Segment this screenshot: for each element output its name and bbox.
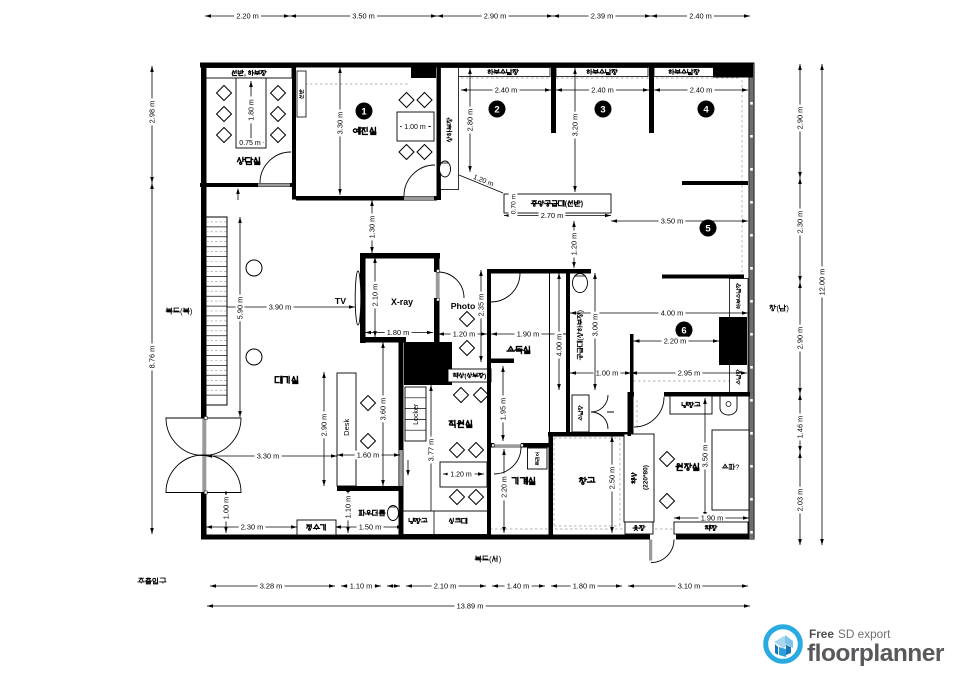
svg-text:2.50 m: 2.50 m bbox=[607, 467, 616, 490]
svg-text:3.77 m: 3.77 m bbox=[426, 439, 435, 462]
svg-text:2.90 m: 2.90 m bbox=[795, 107, 804, 130]
svg-text:1.00 m: 1.00 m bbox=[596, 368, 619, 377]
svg-text:2.20 m: 2.20 m bbox=[501, 476, 508, 498]
svg-text:2.20 m: 2.20 m bbox=[236, 11, 259, 20]
svg-text:2.40 m: 2.40 m bbox=[495, 85, 518, 94]
svg-text:): ) bbox=[484, 373, 486, 380]
svg-text:2.40 m: 2.40 m bbox=[591, 85, 614, 94]
svg-text:1.50 m: 1.50 m bbox=[359, 522, 382, 531]
svg-text:1.90 m: 1.90 m bbox=[701, 513, 724, 522]
svg-text:1.10 m: 1.10 m bbox=[350, 581, 373, 590]
svg-text:2.95 m: 2.95 m bbox=[678, 368, 701, 377]
svg-text:2.90 m: 2.90 m bbox=[795, 327, 804, 350]
svg-text:0.75 m: 0.75 m bbox=[239, 140, 261, 147]
svg-text:4: 4 bbox=[703, 104, 709, 115]
svg-text:1.10 m: 1.10 m bbox=[343, 496, 352, 519]
svg-text:5.90 m: 5.90 m bbox=[235, 297, 244, 320]
svg-text:): ) bbox=[786, 304, 789, 313]
svg-text:1.00 m: 1.00 m bbox=[404, 124, 426, 131]
svg-text:1.80 m: 1.80 m bbox=[573, 581, 596, 590]
svg-text:3.30 m: 3.30 m bbox=[335, 112, 344, 135]
svg-text:1.80 m: 1.80 m bbox=[248, 99, 255, 121]
svg-text:): ) bbox=[190, 307, 193, 316]
svg-text:3.50 m: 3.50 m bbox=[352, 11, 375, 20]
svg-text:1.20 m: 1.20 m bbox=[569, 233, 578, 256]
svg-text:(: ( bbox=[489, 555, 492, 564]
svg-text:?: ? bbox=[735, 463, 739, 472]
svg-text:(: ( bbox=[180, 307, 183, 316]
svg-text:3.90 m: 3.90 m bbox=[269, 302, 292, 311]
svg-text:2.03 m: 2.03 m bbox=[795, 489, 804, 512]
svg-text:8.76 m: 8.76 m bbox=[147, 346, 156, 369]
svg-text:1.30 m: 1.30 m bbox=[367, 216, 376, 239]
svg-text:Locker: Locker bbox=[413, 403, 420, 425]
svg-text:2.30 m: 2.30 m bbox=[241, 522, 264, 531]
svg-text:1.40 m: 1.40 m bbox=[507, 581, 530, 590]
svg-text:2.90 m: 2.90 m bbox=[484, 11, 507, 20]
svg-text:,: , bbox=[244, 71, 246, 78]
svg-text:2.39 m: 2.39 m bbox=[591, 11, 614, 20]
svg-text:1.46 m: 1.46 m bbox=[795, 416, 804, 439]
svg-text:2.35 m: 2.35 m bbox=[476, 294, 485, 317]
svg-text:(: ( bbox=[776, 304, 779, 313]
svg-text:1.95 m: 1.95 m bbox=[498, 398, 507, 421]
svg-text:): ) bbox=[576, 310, 585, 312]
svg-text:2.40 m: 2.40 m bbox=[690, 85, 713, 94]
svg-text:2.80 m: 2.80 m bbox=[465, 109, 474, 132]
svg-text:0.70 m: 0.70 m bbox=[510, 193, 517, 214]
svg-text:1.90 m: 1.90 m bbox=[517, 329, 540, 338]
svg-text:2.90 m: 2.90 m bbox=[319, 414, 328, 437]
svg-text:3.30 m: 3.30 m bbox=[257, 451, 280, 460]
svg-text:4.00 m: 4.00 m bbox=[554, 334, 563, 357]
svg-text:3: 3 bbox=[600, 104, 605, 115]
svg-text:1.60 m: 1.60 m bbox=[357, 450, 380, 459]
svg-text:3.00 m: 3.00 m bbox=[590, 314, 599, 337]
svg-text:TV: TV bbox=[335, 296, 346, 306]
svg-text:(220*80): (220*80) bbox=[642, 465, 649, 490]
svg-text:1.20 m: 1.20 m bbox=[453, 329, 476, 338]
svg-text:3.50 m: 3.50 m bbox=[700, 445, 709, 468]
svg-text:2.30 m: 2.30 m bbox=[795, 211, 804, 234]
svg-text:floorplanner: floorplanner bbox=[807, 640, 945, 667]
svg-text:12.00 m: 12.00 m bbox=[817, 269, 826, 296]
svg-text:Photo: Photo bbox=[451, 301, 476, 311]
svg-text:X-ray: X-ray bbox=[391, 297, 413, 307]
svg-text:2.10 m: 2.10 m bbox=[434, 581, 457, 590]
svg-text:3.28 m: 3.28 m bbox=[260, 581, 283, 590]
svg-text:3.10 m: 3.10 m bbox=[678, 581, 701, 590]
svg-text:): ) bbox=[499, 555, 502, 564]
svg-text:5: 5 bbox=[705, 223, 711, 234]
svg-text:4.00 m: 4.00 m bbox=[661, 308, 684, 317]
svg-text:2.10 m: 2.10 m bbox=[370, 284, 379, 307]
svg-text:1.00 m: 1.00 m bbox=[221, 497, 230, 520]
svg-text:2.20 m: 2.20 m bbox=[664, 336, 687, 345]
svg-text:Desk: Desk bbox=[342, 418, 351, 435]
svg-text:SD export: SD export bbox=[838, 627, 891, 641]
svg-text:3.50 m: 3.50 m bbox=[661, 216, 684, 225]
svg-text:3.20 m: 3.20 m bbox=[570, 114, 579, 137]
svg-text:2: 2 bbox=[494, 104, 499, 115]
svg-text:13.89 m: 13.89 m bbox=[457, 601, 484, 610]
svg-text:3.60 m: 3.60 m bbox=[378, 398, 387, 421]
svg-text:1.80 m: 1.80 m bbox=[387, 328, 410, 337]
svg-text:2.70 m: 2.70 m bbox=[541, 211, 564, 220]
svg-text:1.20 m: 1.20 m bbox=[450, 471, 472, 478]
svg-text:2.40 m: 2.40 m bbox=[689, 11, 712, 20]
svg-text:Free: Free bbox=[809, 627, 834, 641]
svg-text:1: 1 bbox=[361, 106, 367, 117]
svg-text:2.98 m: 2.98 m bbox=[147, 101, 156, 124]
svg-text:6: 6 bbox=[681, 325, 686, 336]
